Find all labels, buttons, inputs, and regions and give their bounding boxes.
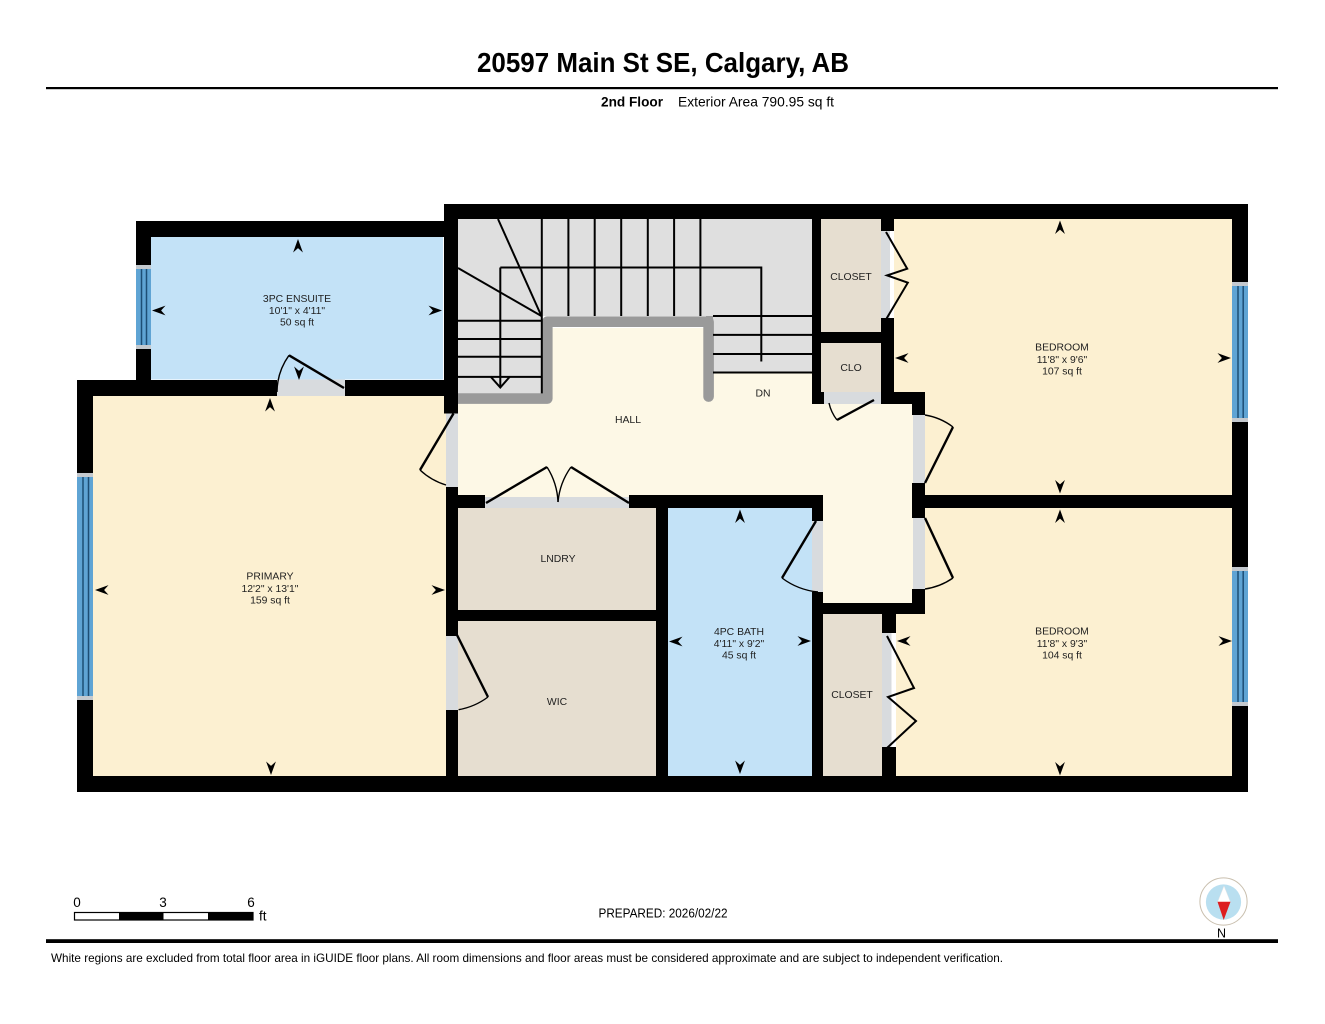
svg-text:6: 6 — [247, 895, 255, 910]
svg-text:12'2" x 13'1": 12'2" x 13'1" — [242, 584, 299, 595]
svg-text:50 sq ft: 50 sq ft — [280, 318, 314, 329]
svg-text:104 sq ft: 104 sq ft — [1042, 651, 1082, 662]
svg-text:BEDROOM: BEDROOM — [1035, 343, 1089, 354]
svg-text:ft: ft — [259, 909, 267, 924]
svg-text:WIC: WIC — [547, 697, 568, 708]
svg-text:BEDROOM: BEDROOM — [1035, 627, 1089, 638]
svg-text:CLOSET: CLOSET — [831, 690, 873, 701]
svg-text:PREPARED: 2026/02/22: PREPARED: 2026/02/22 — [599, 906, 728, 921]
svg-text:CLO: CLO — [840, 363, 861, 374]
svg-text:4'11" x 9'2": 4'11" x 9'2" — [714, 639, 765, 650]
svg-text:LNDRY: LNDRY — [540, 554, 575, 565]
svg-text:CLOSET: CLOSET — [830, 272, 872, 283]
svg-text:10'1" x 4'11": 10'1" x 4'11" — [269, 306, 326, 317]
svg-text:3PC ENSUITE: 3PC ENSUITE — [263, 294, 331, 305]
svg-text:3: 3 — [159, 895, 167, 910]
svg-text:DN: DN — [755, 389, 770, 400]
svg-text:159 sq ft: 159 sq ft — [250, 596, 290, 607]
svg-text:PRIMARY: PRIMARY — [246, 572, 293, 583]
svg-text:2nd Floor: 2nd Floor — [601, 94, 664, 110]
svg-text:Exterior Area 790.95 sq ft: Exterior Area 790.95 sq ft — [678, 94, 834, 110]
svg-text:White regions are excluded fro: White regions are excluded from total fl… — [51, 951, 1003, 965]
svg-text:0: 0 — [73, 895, 81, 910]
svg-text:107 sq ft: 107 sq ft — [1042, 367, 1082, 378]
svg-text:45 sq ft: 45 sq ft — [722, 651, 756, 662]
svg-text:11'8" x 9'6": 11'8" x 9'6" — [1037, 355, 1088, 366]
svg-text:20597 Main St SE, Calgary, AB: 20597 Main St SE, Calgary, AB — [477, 47, 849, 78]
svg-text:HALL: HALL — [615, 415, 641, 426]
svg-text:4PC BATH: 4PC BATH — [714, 627, 764, 638]
svg-text:N: N — [1217, 926, 1226, 940]
svg-text:11'8" x 9'3": 11'8" x 9'3" — [1037, 639, 1088, 650]
